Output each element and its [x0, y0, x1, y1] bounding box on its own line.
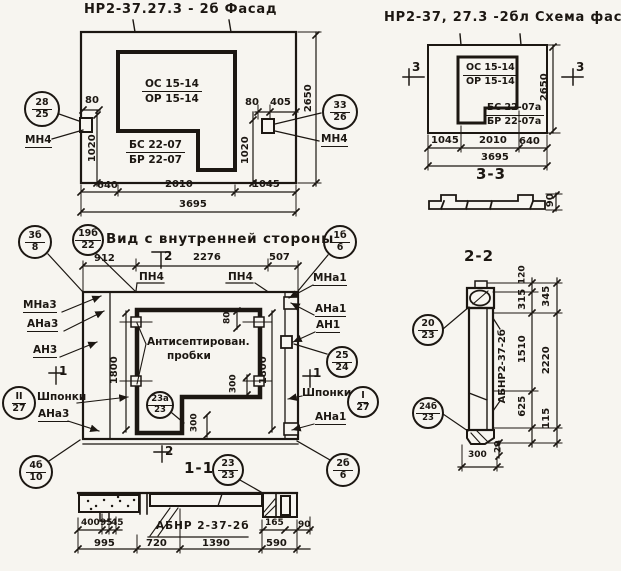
note-line2: пробки — [167, 351, 211, 362]
label-mna1: МНа1 — [313, 273, 347, 286]
callout-23-23: 23 23 — [212, 454, 244, 486]
callout-bottom: 26 — [330, 113, 349, 123]
callout-top: 19б — [75, 229, 101, 240]
dim-90-33: 90 — [546, 178, 557, 222]
mark-line: БР 22-07 — [129, 153, 182, 166]
mark-line: ОС 15-14 — [463, 63, 518, 76]
dim-1045: 1045 — [252, 180, 280, 191]
callout-23a-23: 23а 23 — [146, 391, 174, 419]
dim-720: 720 — [146, 539, 167, 550]
callout-19b-22: 19б 22 — [72, 224, 104, 256]
dim-1020-right: 1020 — [241, 128, 252, 172]
callout-top: 24б — [416, 403, 440, 413]
mark-line: БС 22-07 — [126, 139, 185, 153]
callout-II-27: II 27 — [2, 386, 36, 420]
callout-bottom: 23 — [151, 406, 169, 415]
callout-25-24: 25 24 — [326, 346, 358, 378]
dim-912: 912 — [94, 254, 115, 265]
label-abnr-11: АБНР 2-37-2б — [156, 521, 250, 532]
mark-line: БС 22-07а — [484, 103, 544, 116]
label-ana1-b: АНа1 — [315, 412, 346, 425]
callout-top: 1б — [330, 231, 349, 242]
dim-1390: 1390 — [202, 539, 230, 550]
dim-80-right: 80 — [245, 98, 259, 109]
callout-top: 3б — [25, 231, 44, 242]
section-marker-1-left: 1 — [59, 365, 67, 378]
callout-28-25: 28 25 — [24, 91, 60, 127]
dim-45: 45 — [111, 519, 124, 528]
dim-80-left: 80 — [85, 96, 99, 107]
dim-640: 640 — [97, 181, 118, 192]
dim-1045-scheme: 1045 — [431, 136, 459, 147]
label-mn4-right: МН4 — [321, 134, 348, 147]
callout-24b-23: 24б 23 — [412, 397, 444, 429]
callout-bottom: 24 — [332, 363, 351, 373]
label-abnr-22: АБНР2-37-2б — [498, 326, 509, 406]
callout-top: 2б — [333, 459, 352, 470]
section33-title: 3-3 — [476, 167, 506, 183]
callout-top: 25 — [332, 351, 351, 362]
callout-bottom: 8 — [29, 243, 42, 253]
dim-300-inner-right: 300 — [229, 362, 238, 406]
label-shponki-left: Шпонки — [37, 392, 86, 404]
dim-115: 115 — [542, 396, 553, 440]
drawing-sheet: НР2-37.27.3 - 2б Фасад НР2-37, 27.3 -2бл… — [0, 0, 621, 571]
dim-3695-scheme: 3695 — [481, 153, 509, 164]
callout-bottom: 23 — [418, 331, 437, 341]
callout-top: 4б — [26, 461, 45, 472]
callout-bottom: 22 — [78, 241, 97, 251]
section22-title: 2-2 — [464, 249, 494, 265]
dim-20: 20 — [494, 425, 503, 469]
dim-1800-right: 1800 — [259, 348, 270, 392]
facade-title: НР2-37.27.3 - 2б Фасад — [84, 3, 277, 17]
section-marker-3-left: 3 — [412, 61, 420, 74]
callout-1b-6: 1б 6 — [323, 225, 357, 259]
callout-top: I — [358, 391, 368, 402]
section-marker-1-right: 1 — [313, 367, 321, 380]
scheme-mark-top: ОС 15-14 ОР 15-14 — [463, 63, 518, 88]
dim-1510: 1510 — [518, 327, 529, 371]
callout-bottom: 27 — [353, 403, 372, 413]
dim-507: 507 — [269, 253, 290, 264]
mark-line: ОС 15-14 — [142, 78, 202, 92]
dim-300-22: 300 — [468, 451, 487, 460]
callout-bottom: 25 — [32, 110, 51, 120]
dim-315: 315 — [518, 277, 529, 321]
callout-top: 23а — [148, 395, 172, 405]
label-an3: АН3 — [33, 345, 57, 358]
label-mn4-left: МН4 — [25, 135, 52, 148]
callout-bottom: 23 — [419, 414, 437, 423]
dim-625: 625 — [518, 384, 529, 428]
label-ana1-a: АНа1 — [315, 304, 346, 317]
callout-20-23: 20 23 — [412, 314, 444, 346]
section11-title: 1-1 — [184, 461, 214, 477]
dim-3695: 3695 — [179, 200, 207, 211]
dim-640-scheme: 640 — [519, 137, 540, 148]
dim-165: 165 — [265, 519, 284, 528]
callout-top: 20 — [418, 319, 437, 330]
callout-bottom: 6 — [337, 471, 350, 481]
dim-345: 345 — [542, 274, 553, 318]
section-marker-3-right: 3 — [576, 61, 584, 74]
callout-bottom: 27 — [9, 404, 28, 414]
scheme-title: НР2-37, 27.3 -2бл Схема фасада — [384, 11, 621, 25]
callout-33-26: 33 26 — [322, 94, 358, 130]
callout-bottom: 23 — [218, 471, 237, 481]
callout-2b-6: 2б 6 — [326, 453, 360, 487]
dim-2650-scheme: 2650 — [540, 65, 551, 109]
facade-mark-top: ОС 15-14 ОР 15-14 — [142, 78, 202, 105]
inner-view-title: Вид с внутренней стороны — [106, 232, 334, 246]
label-ana3-a: АНа3 — [27, 319, 58, 332]
note-line1: Антисептирован. — [147, 337, 250, 348]
callout-top: 23 — [218, 459, 237, 470]
dim-2650-facade: 2650 — [304, 76, 315, 120]
callout-bottom: 10 — [26, 473, 45, 483]
label-mna3: МНа3 — [23, 300, 57, 313]
label-shponki-right: Шпонки — [302, 388, 351, 400]
facade-mark-bottom: БС 22-07 БР 22-07 — [126, 139, 185, 166]
dim-300-inner-notch: 300 — [190, 401, 199, 445]
label-an1: АН1 — [316, 320, 340, 333]
dim-80-inner: 80 — [223, 296, 232, 340]
label-pn4-a: ПН4 — [139, 272, 164, 284]
dim-2010-scheme: 2010 — [479, 136, 507, 147]
dim-995: 995 — [94, 539, 115, 550]
dim-90-11: 90 — [298, 521, 311, 530]
dim-400: 400 — [81, 519, 100, 528]
label-ana3-b: АНа3 — [38, 409, 69, 422]
label-pn4-b: ПН4 — [228, 272, 253, 284]
callout-top: 33 — [330, 101, 349, 112]
callout-3b-8: 3б 8 — [18, 225, 52, 259]
dim-1020-left: 1020 — [88, 126, 99, 170]
mark-line: ОР 15-14 — [145, 92, 199, 105]
mark-line: ОР 15-14 — [466, 76, 515, 88]
callout-top: II — [12, 392, 25, 403]
callout-top: 28 — [32, 98, 51, 109]
mark-line: БР 22-07а — [487, 116, 541, 128]
dim-2010: 2010 — [165, 180, 193, 191]
section-marker-2-top: 2 — [164, 250, 172, 263]
section-marker-2-bottom: 2 — [165, 445, 173, 458]
scheme-mark-bottom: БС 22-07а БР 22-07а — [484, 103, 544, 128]
section33-profile — [429, 195, 545, 209]
callout-4b-10: 4б 10 — [19, 455, 53, 489]
callout-I-27: I 27 — [347, 386, 379, 418]
dim-405: 405 — [270, 98, 291, 109]
dim-2220: 2220 — [542, 338, 553, 382]
dim-590: 590 — [266, 539, 287, 550]
dim-2276: 2276 — [193, 253, 221, 264]
callout-bottom: 6 — [334, 243, 347, 253]
dim-1800-left: 1800 — [110, 348, 121, 392]
